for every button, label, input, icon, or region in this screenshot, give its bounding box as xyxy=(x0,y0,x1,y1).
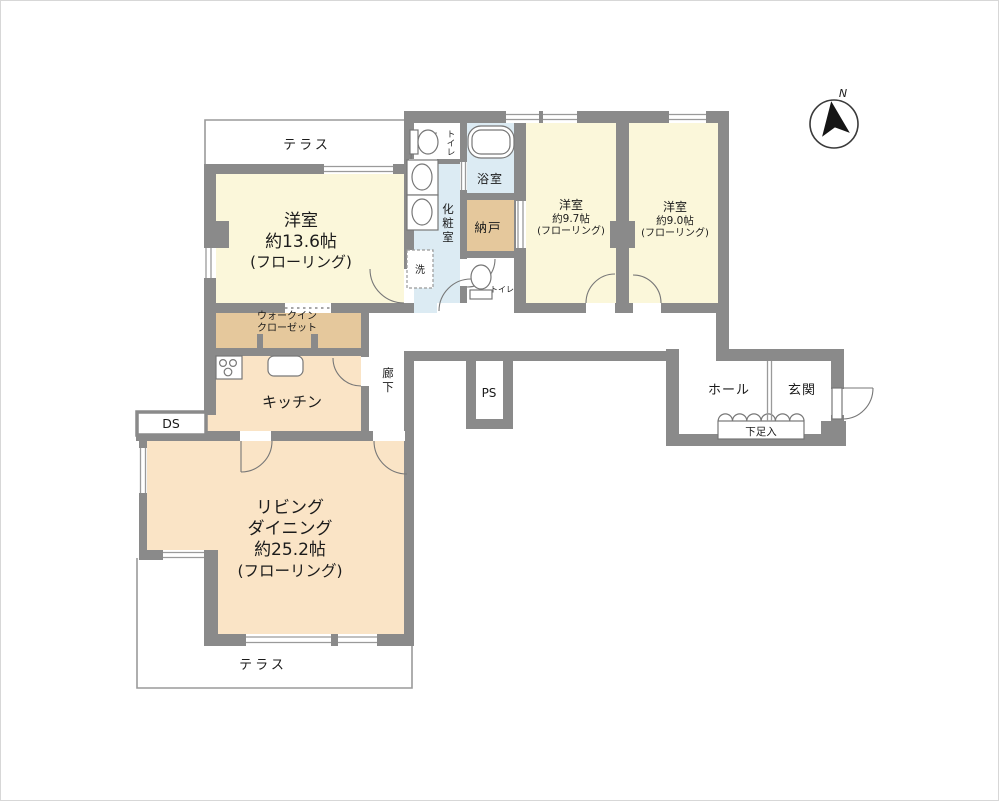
living-label-4: (フローリング) xyxy=(237,562,342,580)
powder-label-2: 粧 xyxy=(442,216,454,230)
powder-label-1: 化 xyxy=(442,202,454,216)
bedroom-b-label-1: 洋室 xyxy=(559,197,583,212)
entrance-label: 玄関 xyxy=(788,383,816,398)
corridor-label-1: 廊 xyxy=(382,366,394,380)
stove-icon xyxy=(216,356,242,379)
bedroom-c-label-2: 約9.0帖 xyxy=(656,214,694,227)
terrace-bottom-label: テラス xyxy=(239,658,287,673)
bedroom-c-label-3: (フローリング) xyxy=(641,226,709,239)
floor-plan-page: DS N テラス 洋室 約13.6帖 (フローリング) ウォークイン クローゼッ… xyxy=(0,0,999,801)
bathtub-icon xyxy=(468,126,514,158)
bedroom-a-label-2: 約13.6帖 xyxy=(265,232,337,252)
laundry-label: 洗 xyxy=(415,264,425,276)
floor-plan-drawing: DS N テラス 洋室 約13.6帖 (フローリング) ウォークイン クローゼッ… xyxy=(1,1,999,802)
ps-label: PS xyxy=(482,386,497,400)
double-sink-icon xyxy=(407,160,438,230)
compass: N xyxy=(810,87,858,148)
bedroom-a-label-1: 洋室 xyxy=(284,211,318,231)
powder-label-3: 室 xyxy=(442,230,454,244)
bath-label: 浴室 xyxy=(477,171,503,186)
bedroom-a-label-3: (フローリング) xyxy=(250,253,352,271)
bedroom-b-label-2: 約9.7帖 xyxy=(552,212,590,225)
corridor-label-2: 下 xyxy=(382,380,394,394)
wic-label-1: ウォークイン xyxy=(257,310,317,322)
bedroom-c-label-1: 洋室 xyxy=(663,199,687,214)
entrance-door-icon xyxy=(831,388,873,419)
ds-duct: DS xyxy=(137,412,206,435)
hall-label: ホール xyxy=(708,383,750,398)
toilet-upper-label-3: レ xyxy=(447,148,456,158)
entrance-step-divider xyxy=(768,361,772,421)
toilet-lower-icon xyxy=(470,265,492,299)
compass-north-label: N xyxy=(839,87,847,100)
living-label-2: ダイニング xyxy=(248,519,333,539)
living-label-3: 約25.2帖 xyxy=(254,540,326,560)
toilet-lower-label: トイレ xyxy=(490,285,514,294)
bedroom-b-label-3: (フローリング) xyxy=(537,224,605,237)
kitchen-sink-icon xyxy=(268,356,303,376)
toilet-upper-icon xyxy=(410,130,438,154)
storage-label: 納戸 xyxy=(474,220,501,235)
wic-label-2: クローゼット xyxy=(257,322,317,334)
terrace-top-label: テラス xyxy=(283,138,331,153)
living-label-1: リビング xyxy=(256,498,324,518)
shoe-cabinet-label: 下足入 xyxy=(745,426,777,438)
kitchen-label: キッチン xyxy=(262,393,322,411)
ds-label: DS xyxy=(162,416,180,431)
